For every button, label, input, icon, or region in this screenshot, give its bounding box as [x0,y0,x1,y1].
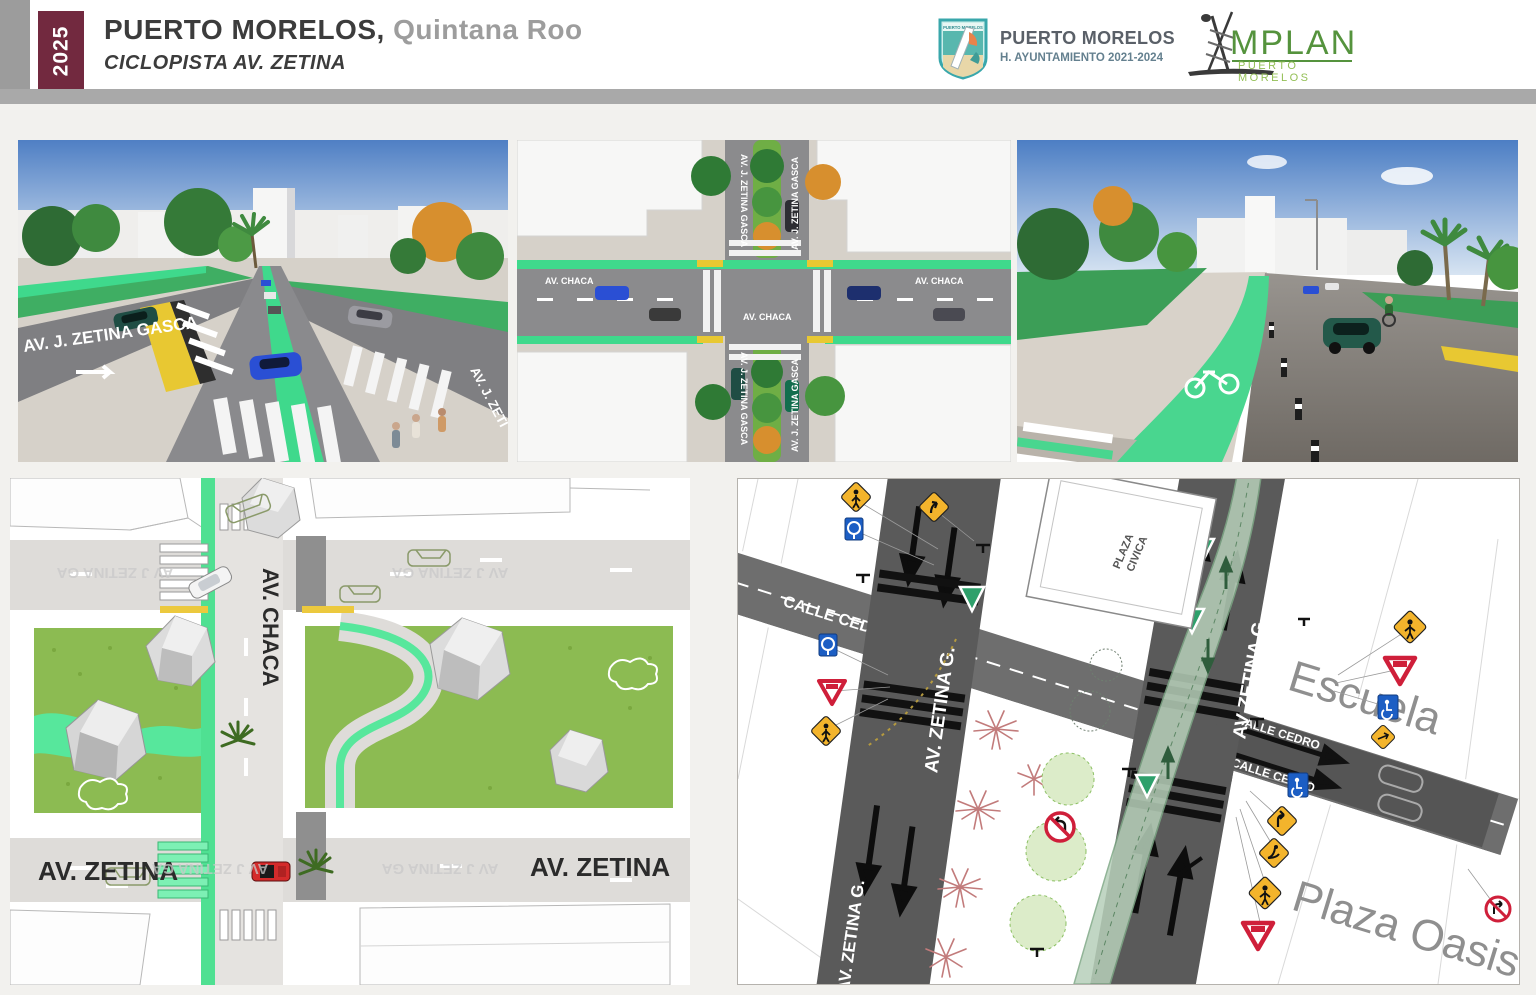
svg-text:PUERTO MORELOS: PUERTO MORELOS [943,25,983,30]
implan-name: MPLAN [1230,24,1357,63]
road-label-zetina-top-right: AV. J. ZETINA GASCA [790,156,800,250]
road-label-av-zetina-east: AV. ZETINA [530,852,670,882]
ayuntamiento-name: PUERTO MORELOS [1000,28,1175,49]
render-perspective-intersection: AV. J. ZETINA GASCA AV. J. ZETI [18,140,508,462]
faded-road-text: AV J ZETINA GA [392,564,509,581]
sign-no-right-turn [1486,897,1510,921]
page-title: PUERTO MORELOS, Quintana Roo [104,14,583,46]
faded-road-text: AV J ZETINA GA [152,860,269,877]
cycle-lane-top [517,260,1011,269]
year-badge: 2025 [38,11,84,90]
ayuntamiento-logo: PUERTO MORELOS PUERTO MORELOS H. AYUNTAM… [936,12,1175,80]
sign-blue-parking [845,518,863,540]
road-label-zetina-bottom-right: AV. J. ZETINA GASCA [790,358,800,452]
implan-logo: MPLAN PUERTO MORELOS [1182,8,1372,86]
project-subtitle: CICLOPISTA AV. ZETINA [104,52,583,75]
year-label: 2025 [49,25,73,76]
plan-traffic-right: CALLE CEDRO CALLE CEDRO CALLE CEDRO [737,478,1520,985]
render-street-level-cyclelane [1017,140,1518,462]
sign-blue-accessible [1288,773,1308,797]
cloud [1247,155,1287,169]
median-bottom [751,344,783,462]
cycle-lane-av-chaca [201,478,215,985]
header: 2025 PUERTO MORELOS, Quintana Roo CICLOP… [0,0,1536,89]
title-city: PUERTO MORELOS, [104,14,385,45]
cloud [1381,167,1433,185]
crosswalk-chaca-south [220,910,276,940]
ayuntamiento-text: PUERTO MORELOS H. AYUNTAMIENTO 2021-2024 [1000,28,1175,64]
plan-site-left: AV. CHACA AV. ZETINA AV. ZETINA AV J ZET… [10,478,690,985]
faded-road-text: AV J ZETINA GA [382,860,499,877]
ayuntamiento-shield-icon: PUERTO MORELOS [936,12,990,80]
slide-page: 2025 PUERTO MORELOS, Quintana Roo CICLOP… [0,0,1536,995]
sign-blue-parking [819,634,837,656]
sign-no-left-turn [1046,813,1074,841]
title-state: Quintana Roo [393,14,583,45]
title-block: PUERTO MORELOS, Quintana Roo CICLOPISTA … [104,14,583,75]
sign-blue-accessible [1378,695,1398,719]
road-label-zetina-top-left: AV. J. ZETINA GASCA [739,154,749,248]
implan-subtitle: PUERTO MORELOS [1238,60,1372,84]
road-label-chaca-left: AV. CHACA [545,276,594,286]
header-divider-bar [0,89,1536,104]
road-label-zetina-bottom-left: AV. J. ZETINA GASCA [739,352,749,446]
render-top-view-intersection: AV. J. ZETINA GASCA AV. J. ZETINA GASCA … [517,140,1011,462]
road-label-chaca-center: AV. CHACA [743,312,792,322]
driveway-dark-upper [296,536,326,612]
cycle-lane-bottom-right [825,336,1011,344]
faded-road-text: AV J ZETINA GA [57,564,174,581]
cycle-lane-bottom-left [517,336,703,344]
road-label-chaca-right: AV. CHACA [915,276,964,286]
ayuntamiento-term: H. AYUNTAMIENTO 2021-2024 [1000,52,1175,64]
road-label-av-chaca: AV. CHACA [258,568,283,687]
